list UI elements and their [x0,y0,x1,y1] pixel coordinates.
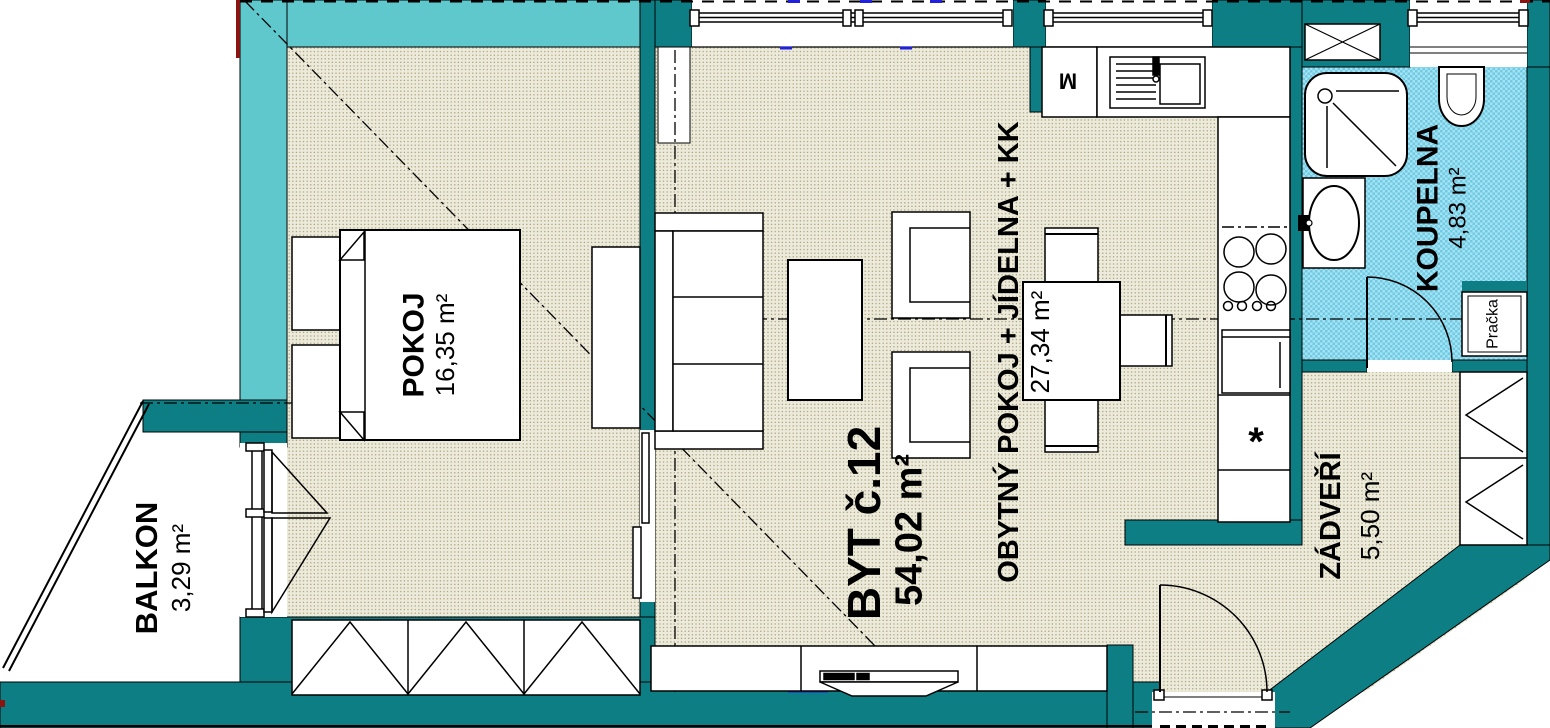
wall-kitchen-bottom [1125,520,1302,545]
room-area-balkon: 3,29 m² [166,524,196,612]
room-label-zadveri: ZÁDVEŘÍ [1313,451,1347,579]
tv-sideboard [651,646,1107,696]
toilet-icon [1439,67,1484,126]
dining-chair [1045,228,1098,282]
wall-hall-stub [1107,645,1133,728]
balcony-railing-icon [3,401,149,671]
apartment-title: BYT č.12 [838,426,890,620]
wall-bath-bottom-right [1452,360,1527,372]
apartment-title-area: 54,02 m² [888,454,930,606]
room-label-balkon: BALKON [129,502,164,635]
wall-right [1527,67,1550,560]
shower-icon [1305,73,1407,176]
wall-pillar-return [1030,47,1042,112]
room-area-koupelna: 4,83 m² [1444,167,1471,248]
wall-kitchen-bath [1290,47,1302,545]
wall-top-right-a [1212,0,1302,47]
window-reveal [658,47,690,143]
dining-chair [1045,400,1098,452]
wall-balcony-stub [143,400,287,432]
wall-top-light [240,0,640,47]
coffee-table [788,260,862,400]
room-label-obytny-pokoj: OBYTNÝ POKOJ + JÍDELNA + KK [991,121,1025,582]
dining-chair [1120,315,1172,366]
armchair [892,212,970,318]
fridge-star-symbol: * [1248,420,1264,464]
room-area-obytny-pokoj: 27,34 m² [1025,290,1055,393]
hall-wardrobe [1460,372,1527,545]
washing-machine-label: Pračka [1485,299,1502,349]
nightstand [292,237,340,330]
floor-plan-page: * [0,0,1550,728]
room-label-pokoj: POKOJ [398,292,431,397]
washbasin-icon [1299,178,1365,268]
vent-shaft-icon [1305,24,1380,60]
sink-icon [1110,57,1205,108]
sofa [655,213,763,449]
armchair [892,352,970,458]
oven-icon [1222,330,1290,393]
kitchen-cabinet-label: M [1059,68,1077,93]
room-area-pokoj: 16,35 m² [430,293,460,396]
room-label-koupelna: KOUPELNA [1412,124,1445,292]
wall-window-pillar [1013,0,1046,47]
wardrobe [592,247,640,428]
room-area-zadveri: 5,50 m² [1355,472,1385,560]
wall-bath-bottom-left [1302,360,1367,372]
nightstand [292,345,340,438]
floor-plan-drawing: * [0,0,1550,728]
builtin-closet [292,620,640,695]
wall-top-corner [1527,0,1550,67]
wall-left-light [240,0,287,400]
